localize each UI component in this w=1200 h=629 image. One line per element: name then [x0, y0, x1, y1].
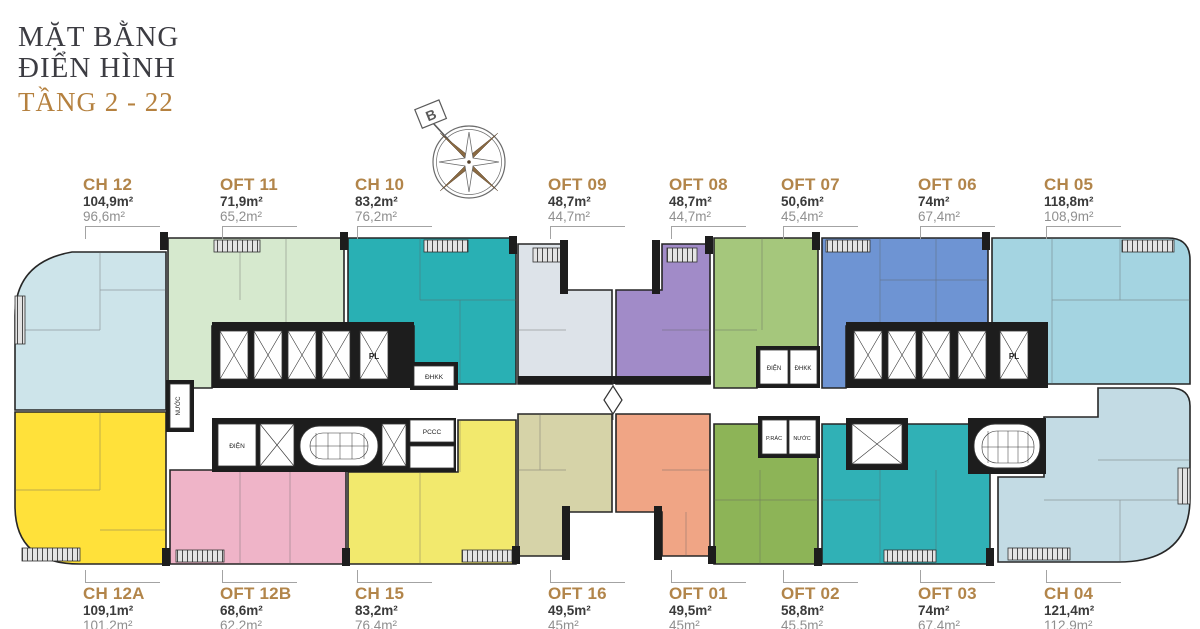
unit-label-ch-04: CH 04121,4m²112,9m² [1044, 585, 1164, 629]
unit-area-gross: 83,2m² [355, 195, 475, 209]
floor-plan-page: MẶT BẰNG ĐIỂN HÌNH TẦNG 2 - 22 B [0, 0, 1200, 629]
elevator-bank-left: PL [212, 322, 414, 388]
unit-area-gross: 68,6m² [220, 604, 340, 618]
unit-area-gross: 109,1m² [83, 604, 203, 618]
unit-area-gross: 50,6m² [781, 195, 901, 209]
room-label-nuoc-right: NƯỚC [793, 435, 810, 442]
service-rooms-bottom: P.RÁC NƯỚC [758, 416, 820, 458]
unit-name: OFT 16 [548, 585, 668, 603]
compass-north-flag: B [415, 100, 447, 128]
unit-label-ch-12a: CH 12A109,1m²101,2m² [83, 585, 203, 629]
room-dhkk-left: ĐHKK [410, 362, 458, 390]
elevator-bank-right: PL [846, 322, 1048, 388]
unit-ch-12 [15, 252, 166, 410]
unit-area-gross: 49,5m² [669, 604, 789, 618]
unit-name: OFT 08 [669, 176, 789, 194]
room-label-dhkk-left: ĐHKK [425, 374, 444, 381]
unit-area-net: 76,4m² [355, 619, 475, 629]
title-line-2: ĐIỂN HÌNH [18, 53, 179, 84]
unit-area-net: 76,2m² [355, 210, 475, 224]
unit-area-net: 101,2m² [83, 619, 203, 629]
unit-label-oft-16: OFT 1649,5m²45m² [548, 585, 668, 629]
service-rooms-top: ĐIỆN ĐHKK [756, 346, 820, 388]
unit-area-net: 45m² [548, 619, 668, 629]
unit-area-net: 45,5m² [781, 619, 901, 629]
room-label-pl-right: PL [1009, 352, 1019, 361]
unit-area-net: 67,4m² [918, 210, 1038, 224]
unit-name: OFT 01 [669, 585, 789, 603]
unit-area-gross: 49,5m² [548, 604, 668, 618]
unit-area-gross: 74m² [918, 604, 1038, 618]
unit-label-oft-03: OFT 0374m²67,4m² [918, 585, 1038, 629]
unit-area-net: 112,9m² [1044, 619, 1164, 629]
unit-area-net: 67,4m² [918, 619, 1038, 629]
unit-area-gross: 121,4m² [1044, 604, 1164, 618]
unit-oft-08 [616, 244, 710, 384]
unit-area-gross: 83,2m² [355, 604, 475, 618]
unit-ch-04 [998, 388, 1190, 562]
unit-label-oft-12b: OFT 12B68,6m²62,2m² [220, 585, 340, 629]
title-line-1: MẶT BẰNG [18, 22, 179, 53]
unit-label-ch-10: CH 1083,2m²76,2m² [355, 176, 475, 224]
unit-name: CH 05 [1044, 176, 1164, 194]
unit-area-gross: 74m² [918, 195, 1038, 209]
unit-area-net: 45m² [669, 619, 789, 629]
room-label-dhkk-top: ĐHKK [795, 366, 812, 372]
unit-name: OFT 03 [918, 585, 1038, 603]
unit-area-net: 44,7m² [548, 210, 668, 224]
unit-area-gross: 48,7m² [669, 195, 789, 209]
unit-area-net: 108,9m² [1044, 210, 1164, 224]
unit-label-ch-15: CH 1583,2m²76,4m² [355, 585, 475, 629]
unit-name: OFT 02 [781, 585, 901, 603]
unit-area-net: 45,4m² [781, 210, 901, 224]
unit-name: CH 15 [355, 585, 475, 603]
unit-label-oft-01: OFT 0149,5m²45m² [669, 585, 789, 629]
unit-area-gross: 118,8m² [1044, 195, 1164, 209]
unit-oft-01 [616, 414, 710, 556]
room-label-dien-bottom: ĐIỆN [229, 441, 245, 450]
unit-label-oft-02: OFT 0258,8m²45,5m² [781, 585, 901, 629]
unit-name: OFT 06 [918, 176, 1038, 194]
title-floor-range: TẦNG 2 - 22 [18, 88, 179, 117]
page-title: MẶT BẰNG ĐIỂN HÌNH TẦNG 2 - 22 [18, 22, 179, 117]
floor-plan: PL ĐHKK PL ĐIỆN ĐHKK [0, 225, 1200, 575]
unit-label-oft-11: OFT 1171,9m²65,2m² [220, 176, 340, 224]
unit-area-net: 65,2m² [220, 210, 340, 224]
room-label-nuoc-left: NƯỚC [175, 396, 182, 416]
room-label-dien-top: ĐIỆN [767, 364, 781, 372]
center-wall-band [518, 376, 711, 384]
core-bottom-left: ĐIỆN PCCC [212, 418, 456, 472]
room-label-prac: P.RÁC [766, 435, 782, 442]
unit-label-oft-06: OFT 0674m²67,4m² [918, 176, 1038, 224]
compass-center-dot [467, 160, 471, 164]
unit-name: CH 12A [83, 585, 203, 603]
unit-area-gross: 104,9m² [83, 195, 203, 209]
unit-name: OFT 12B [220, 585, 340, 603]
unit-area-net: 44,7m² [669, 210, 789, 224]
unit-name: CH 10 [355, 176, 475, 194]
unit-area-gross: 48,7m² [548, 195, 668, 209]
unit-name: OFT 07 [781, 176, 901, 194]
unit-area-net: 62,2m² [220, 619, 340, 629]
unit-name: OFT 11 [220, 176, 340, 194]
unit-name: OFT 09 [548, 176, 668, 194]
unit-label-oft-08: OFT 0848,7m²44,7m² [669, 176, 789, 224]
water-shaft-left: NƯỚC [166, 380, 194, 432]
unit-name: CH 04 [1044, 585, 1164, 603]
unit-label-ch-12: CH 12104,9m²96,6m² [83, 176, 203, 224]
room-label-pccc: PCCC [423, 429, 442, 436]
room-label-pl-left: PL [369, 352, 379, 361]
unit-area-gross: 58,8m² [781, 604, 901, 618]
unit-name: CH 12 [83, 176, 203, 194]
unit-label-oft-09: OFT 0948,7m²44,7m² [548, 176, 668, 224]
unit-area-net: 96,6m² [83, 210, 203, 224]
unit-ch-12a [15, 412, 166, 564]
unit-label-oft-07: OFT 0750,6m²45,4m² [781, 176, 901, 224]
unit-area-gross: 71,9m² [220, 195, 340, 209]
unit-label-ch-05: CH 05118,8m²108,9m² [1044, 176, 1164, 224]
